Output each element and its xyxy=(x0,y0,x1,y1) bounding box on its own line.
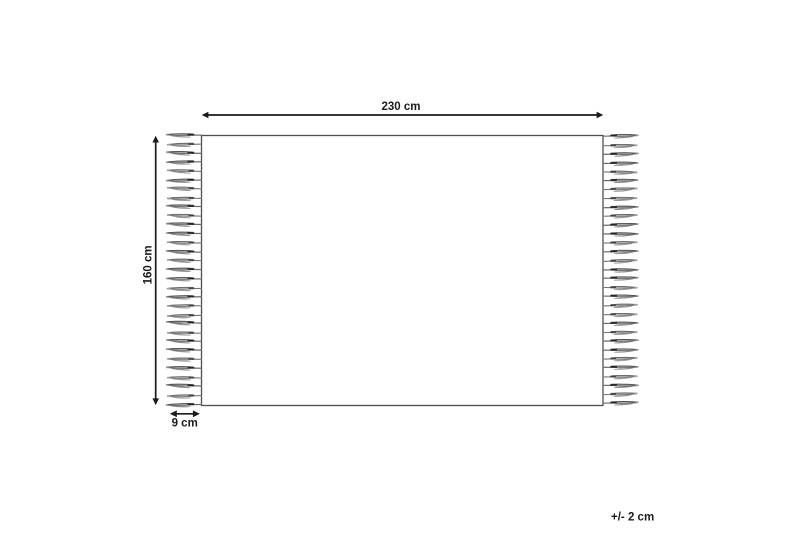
svg-text:160 cm: 160 cm xyxy=(142,245,154,284)
svg-text:+/- 2 cm: +/- 2 cm xyxy=(611,511,654,523)
svg-text:230 cm: 230 cm xyxy=(381,101,420,113)
svg-text:9 cm: 9 cm xyxy=(172,418,198,430)
